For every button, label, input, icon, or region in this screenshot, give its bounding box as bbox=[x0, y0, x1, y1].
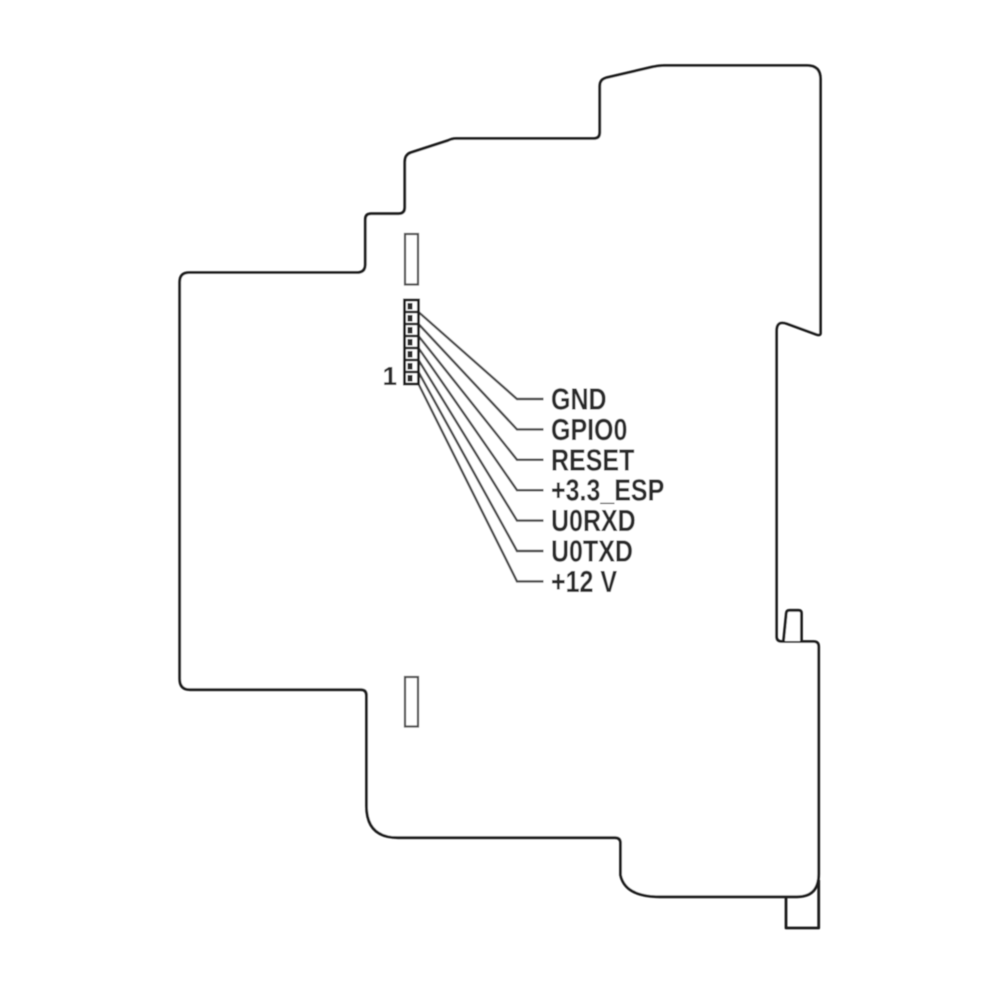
svg-text:U0RXD: U0RXD bbox=[551, 504, 636, 538]
svg-text:1: 1 bbox=[383, 363, 397, 391]
svg-text:GPIO0: GPIO0 bbox=[551, 413, 627, 447]
svg-text:+3.3_ESP: +3.3_ESP bbox=[551, 473, 664, 507]
svg-text:GND: GND bbox=[551, 382, 607, 416]
svg-text:U0TXD: U0TXD bbox=[551, 534, 633, 568]
svg-text:+12 V: +12 V bbox=[551, 565, 617, 599]
svg-text:RESET: RESET bbox=[551, 443, 634, 477]
